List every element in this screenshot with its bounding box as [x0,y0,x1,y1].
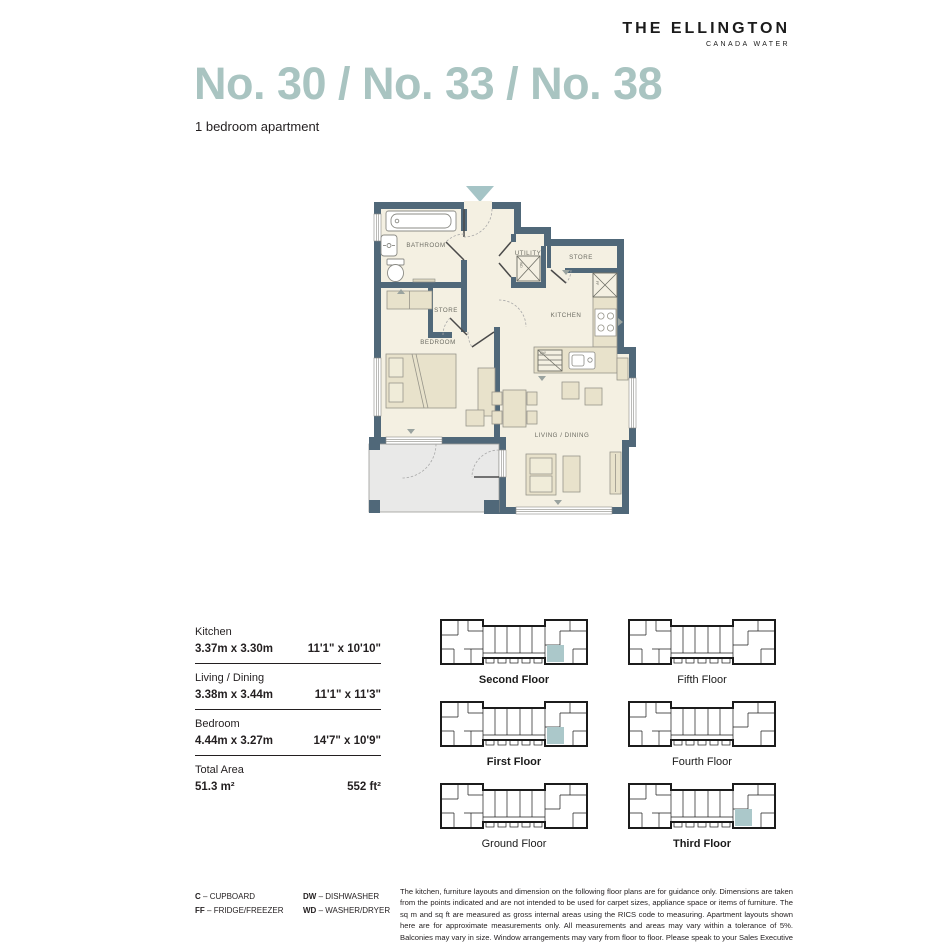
legend-item-dishwasher: DW – DISHWASHER [303,890,390,904]
wardrobe-top [387,291,432,309]
legend-abbr: DW [303,892,316,901]
legend-abbr: FF [195,906,205,915]
imperial-size: 14'7" x 10'9" [313,735,381,748]
media-unit [610,452,621,494]
room-label-store-mid: STORE [434,307,458,314]
wd-label: WD [519,262,523,268]
fridge-freezer: FF [593,273,617,297]
building-plan-icon [626,615,778,669]
metric-size: 4.44m x 3.27m [195,735,273,748]
living-window [516,507,612,514]
floor-label: First Floor [418,756,610,768]
floor-plan-svg: FF DW [366,182,646,528]
legend-item-fridge: FF – FRIDGE/FREEZER [195,904,303,918]
legend-desc: – CUPBOARD [203,892,255,901]
divider [195,663,381,664]
dw-label: DW [540,351,546,355]
legend-item-washer: WD – WASHER/DRYER [303,904,390,918]
room-name: Total Area [195,764,381,777]
sofa [526,454,580,495]
building-plan-icon [438,697,590,751]
dimension-row-living: Living / Dining 3.38m x 3.44m 11'1" x 11… [195,672,381,710]
room-label-store-top: STORE [569,254,593,261]
balcony [369,437,499,514]
unit-highlight [547,727,564,744]
building-plan-icon [438,779,590,833]
console [617,358,628,380]
toilet [387,259,404,282]
divider [195,709,381,710]
dimension-row-kitchen: Kitchen 3.37m x 3.30m 11'1" x 10'10" [195,626,381,664]
floor-label: Fourth Floor [610,756,794,768]
floor-key-ground: Ground Floor [418,779,610,850]
legend-abbr: C [195,892,201,901]
page: THE ELLINGTON CANADA WATER No. 30 / No. … [0,0,945,945]
page-subtitle: 1 bedroom apartment [195,119,319,134]
bed [386,354,456,408]
room-name: Living / Dining [195,672,381,685]
floor-key-grid: Second Floor Fifth Floor First Floor Fou… [418,615,794,850]
floor-label: Fifth Floor [610,674,794,686]
kitchen-sink [569,352,595,369]
brand-logo: THE ELLINGTON CANADA WATER [622,20,790,48]
building-plan-icon [438,615,590,669]
entrance-arrow-icon [466,186,494,202]
imperial-size: 552 ft² [347,781,381,794]
legend-desc: – DISHWASHER [319,892,380,901]
unit-highlight [735,809,752,826]
metric-size: 3.37m x 3.30m [195,643,273,656]
floor-key-third: Third Floor [610,779,794,850]
room-name: Bedroom [195,718,381,731]
ff-label: FF [595,281,599,285]
brand-name: THE ELLINGTON [622,20,790,38]
side-table-1 [562,382,579,399]
room-label-living: LIVING / DINING [535,432,590,439]
floor-key-fifth: Fifth Floor [610,615,794,686]
floor-key-second: Second Floor [418,615,610,686]
washer-dryer: WD [517,256,540,281]
legend-desc: – FRIDGE/FREEZER [207,906,283,915]
imperial-size: 11'1" x 11'3" [315,689,381,702]
abbreviation-legend: C – CUPBOARD FF – FRIDGE/FREEZER DW – DI… [195,890,390,918]
bathtub [386,211,456,231]
washbasin [381,235,397,256]
legend-abbr: WD [303,906,316,915]
hob [595,309,616,336]
legend-desc: – WASHER/DRYER [319,906,391,915]
floor-label: Ground Floor [418,838,610,850]
floor-key-fourth: Fourth Floor [610,697,794,768]
floor-key-first: First Floor [418,697,610,768]
unit-highlight [547,645,564,662]
disclaimer-text: The kitchen, furniture layouts and dimen… [400,886,793,945]
brand-location: CANADA WATER [622,41,790,48]
side-table-2 [585,388,602,405]
room-label-bathroom: BATHROOM [406,242,445,249]
living-side-window [629,378,636,428]
entry-opening [464,201,492,210]
floor-label: Third Floor [610,838,794,850]
page-title: No. 30 / No. 33 / No. 38 [194,58,662,110]
dishwasher: DW [538,350,562,371]
imperial-size: 11'1" x 10'10" [308,643,381,656]
bedroom-window [374,358,381,416]
bathroom-window [374,214,381,241]
bath-shelf [413,279,435,282]
room-name: Kitchen [195,626,381,639]
dimension-row-total: Total Area 51.3 m² 552 ft² [195,764,381,794]
bedroom-balcony-door [386,437,442,444]
room-label-bedroom: BEDROOM [420,339,455,346]
living-balcony-door [499,450,506,477]
room-label-utility: UTILITY [515,250,542,257]
divider [195,755,381,756]
floor-label: Second Floor [418,674,610,686]
building-plan-icon [626,779,778,833]
dimension-row-bedroom: Bedroom 4.44m x 3.27m 14'7" x 10'9" [195,718,381,756]
dimensions-table: Kitchen 3.37m x 3.30m 11'1" x 10'10" Liv… [195,626,381,794]
room-label-kitchen: KITCHEN [551,312,582,319]
legend-item-cupboard: C – CUPBOARD [195,890,303,904]
metric-size: 3.38m x 3.44m [195,689,273,702]
floor-plan: FF DW [366,182,646,528]
metric-size: 51.3 m² [195,781,235,794]
bedroom-chair [466,410,484,426]
building-plan-icon [626,697,778,751]
